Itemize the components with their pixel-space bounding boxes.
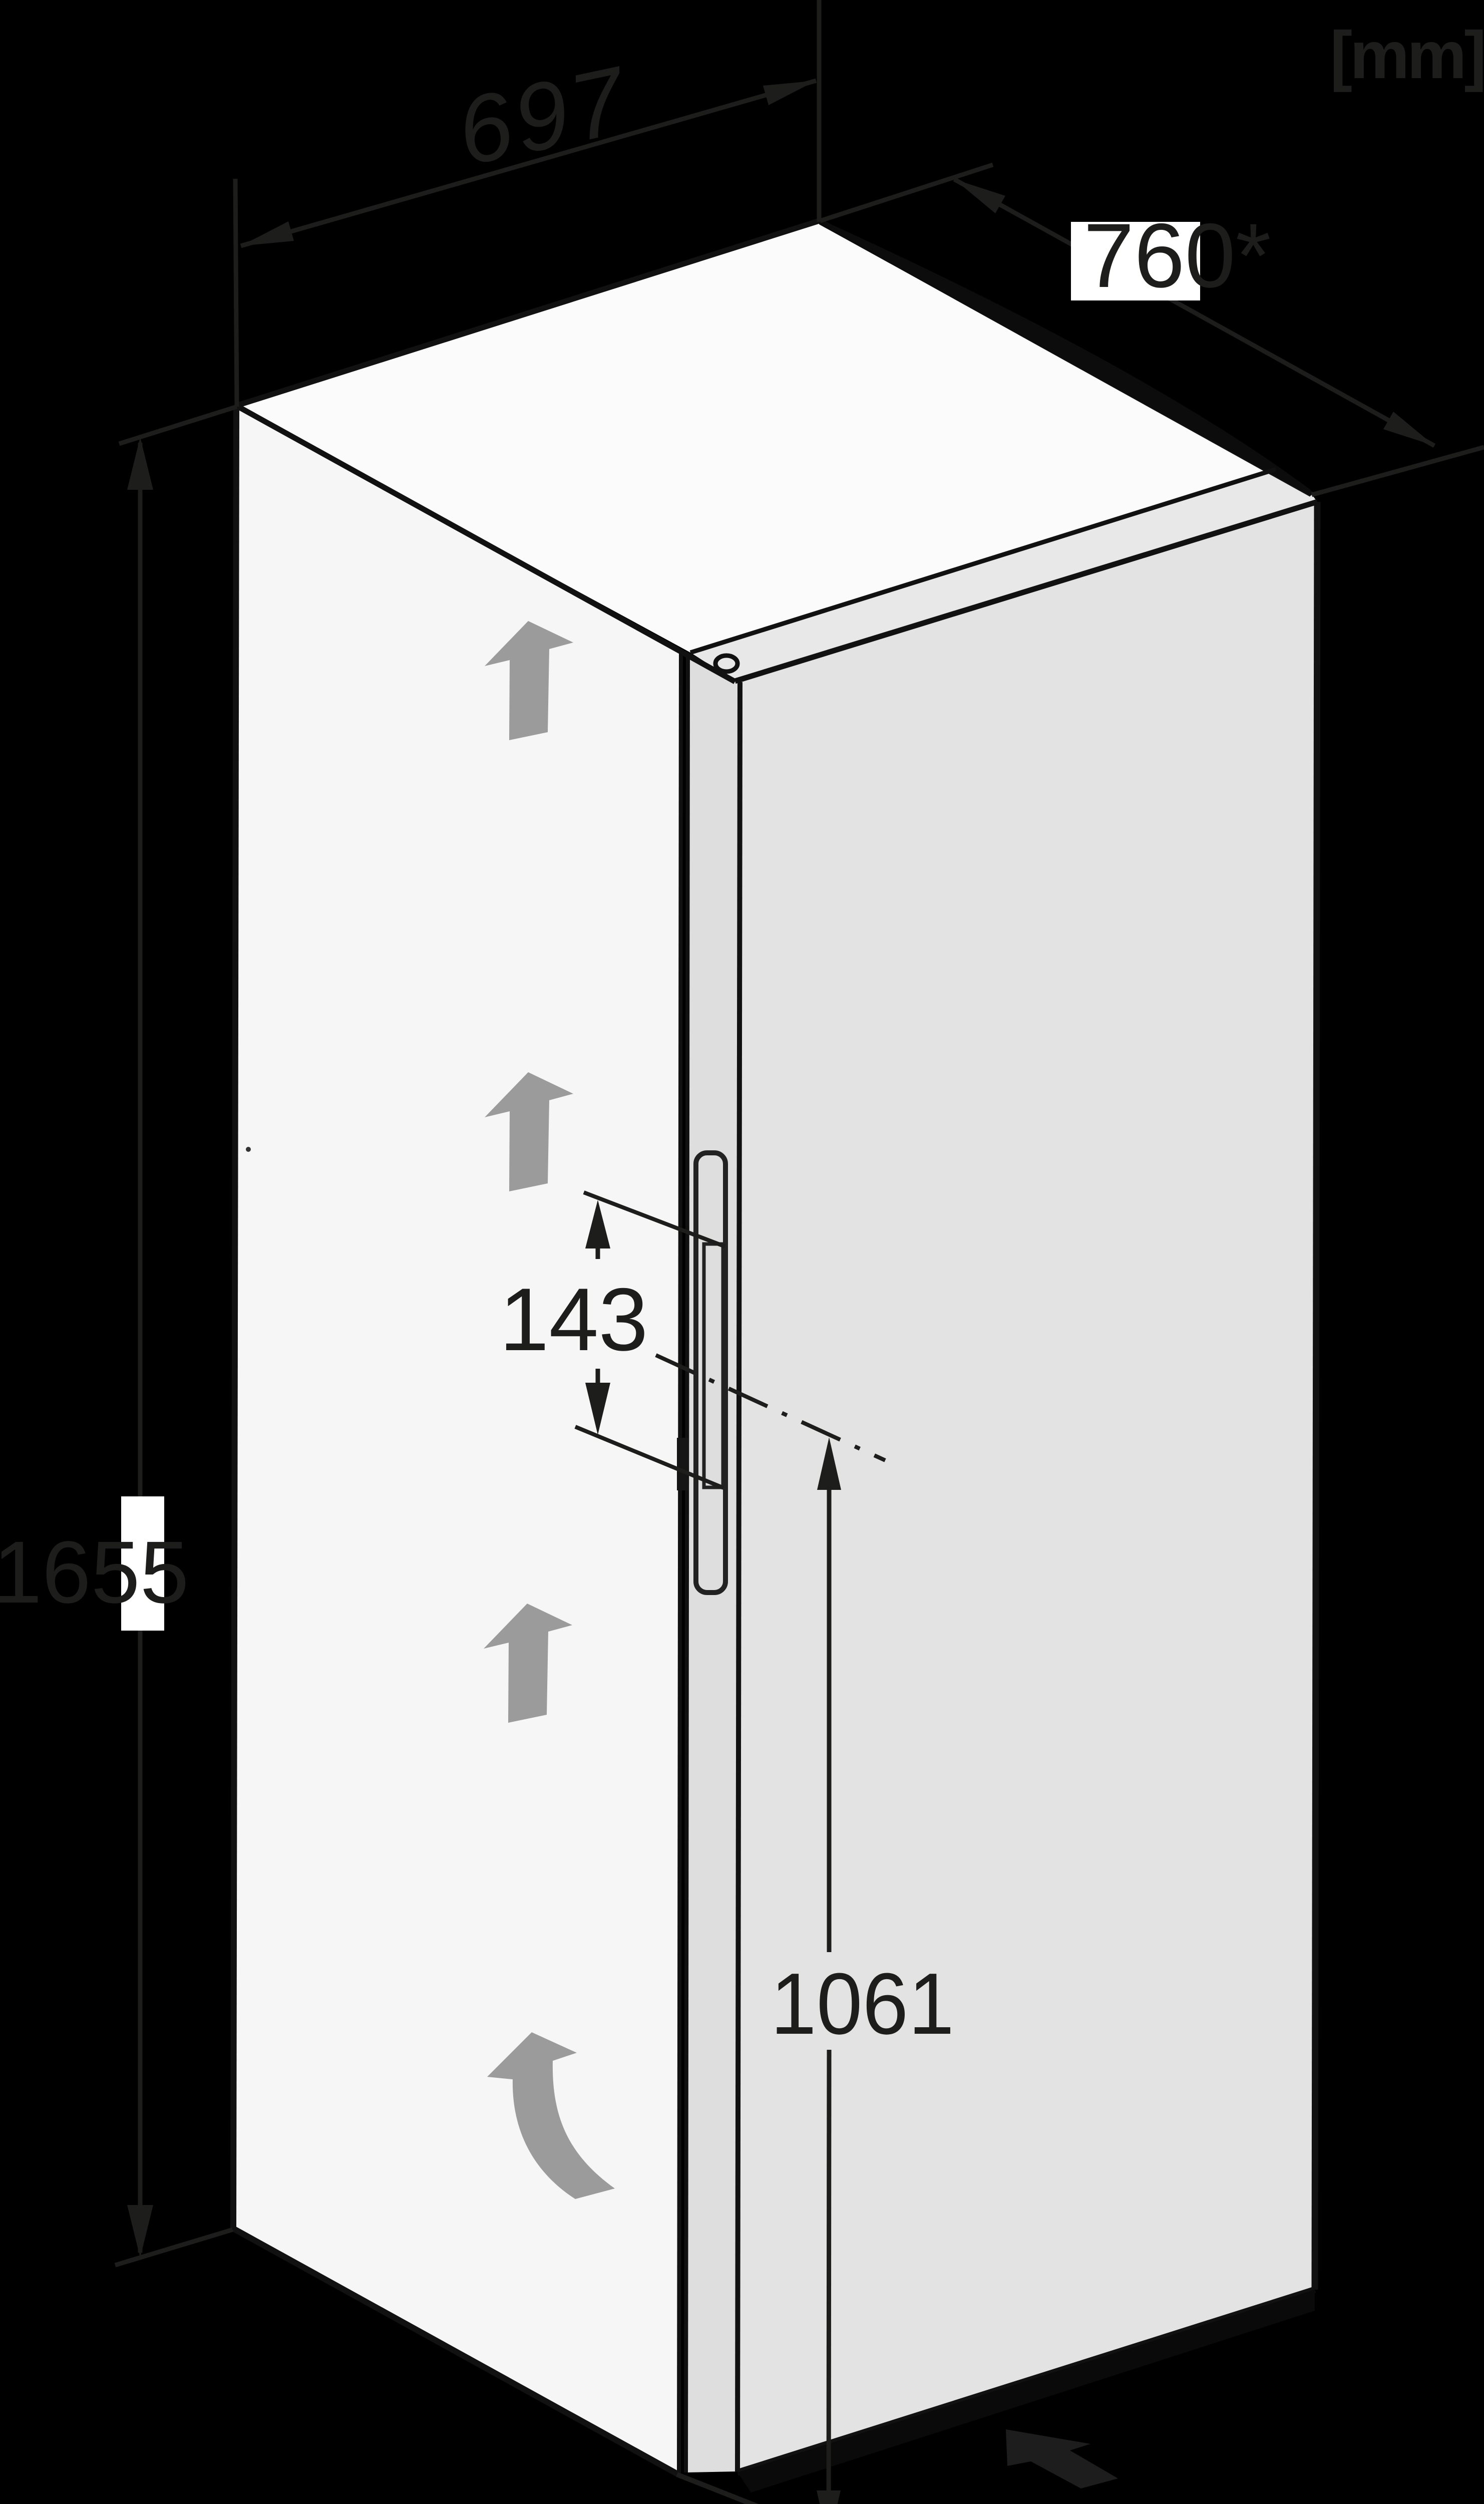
- svg-text:[mm]: [mm]: [1330, 18, 1484, 93]
- svg-text:1061: 1061: [771, 1955, 954, 2052]
- svg-text:1655: 1655: [0, 1523, 189, 1622]
- svg-text:760*: 760*: [1083, 204, 1271, 306]
- svg-text:143: 143: [500, 1270, 648, 1369]
